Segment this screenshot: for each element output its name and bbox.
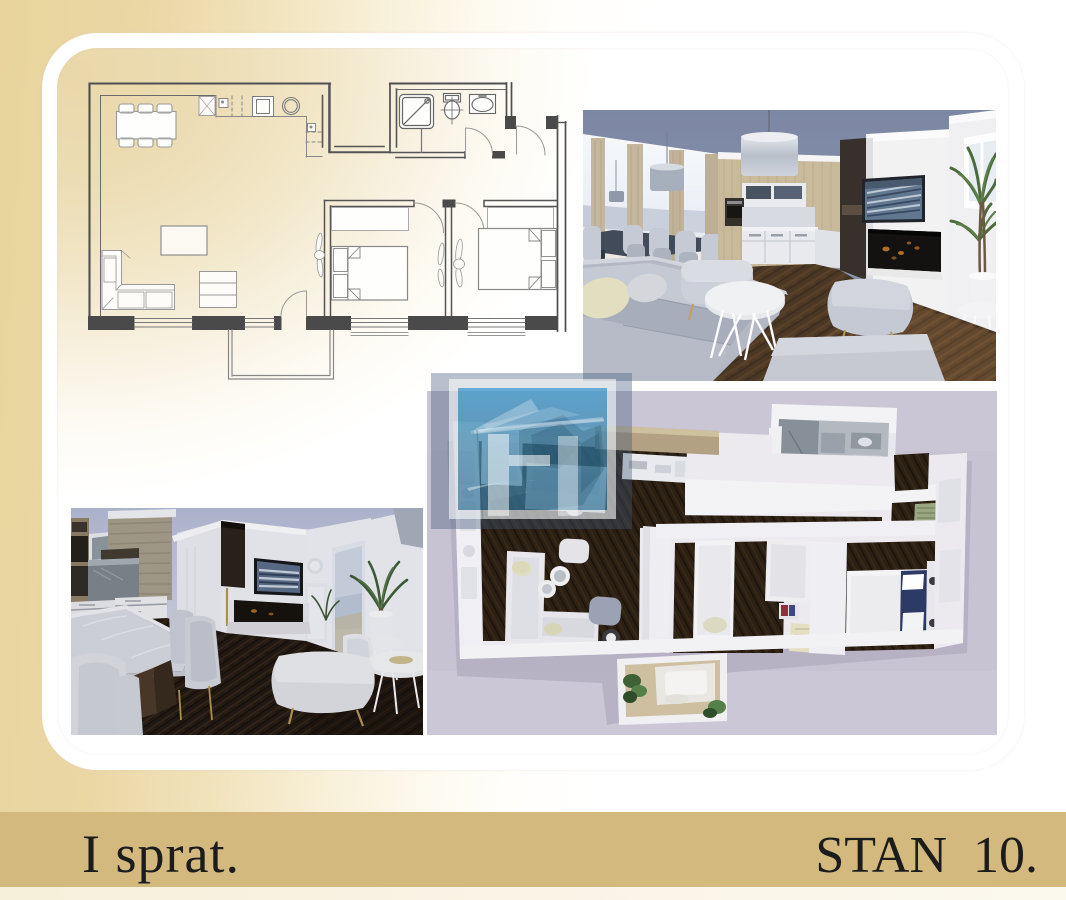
svg-text:I sprat.: I sprat. bbox=[82, 824, 240, 884]
svg-text:STAN 10.: STAN 10. bbox=[815, 827, 1038, 884]
